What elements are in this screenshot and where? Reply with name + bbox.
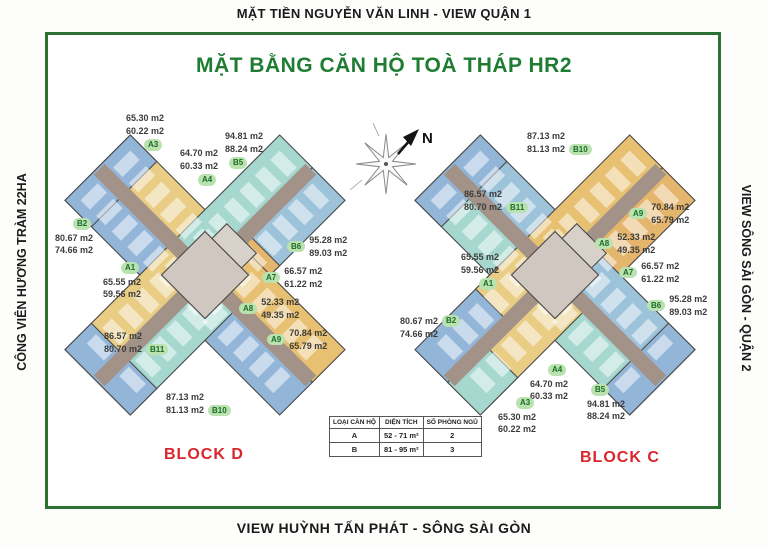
unit-badge: A8 [239,303,257,315]
unit-label-d-b5: 94.81 m288.24 m2 B5 [225,130,263,169]
legend-header-row: LOẠI CĂN HỘ DIỆN TÍCH SỐ PHÒNG NGỦ [330,417,482,429]
legend-cell-area: 81 - 95 m² [379,443,423,457]
unit-area-net: 80.70 m2 [104,343,142,356]
legend-header-type: LOẠI CĂN HỘ [330,417,380,429]
unit-badge: A1 [121,262,139,274]
unit-badge: B11 [146,344,168,356]
unit-area-gross: 66.57 m2 [641,260,679,273]
unit-area-gross: 64.70 m2 [180,147,218,160]
page-title: MẶT BẰNG CĂN HỘ TOÀ THÁP HR2 [0,54,768,78]
unit-area-gross: 52.33 m2 [261,296,299,309]
right-view-label: VIEW SÔNG SÀI GÒN - QUẬN 2 [739,185,753,372]
unit-area-net: 49.35 m2 [261,309,299,322]
unit-area-gross: 64.70 m2 [530,378,568,391]
bottom-view-label: VIEW HUỲNH TẤN PHÁT - SÔNG SÀI GÒN [0,520,768,536]
unit-label-d-a3: 65.30 m260.22 m2 A3 [126,112,164,151]
unit-label-c-a8: A8 52.33 m249.35 m2 [595,231,655,256]
block-d-name: BLOCK D [164,446,244,464]
unit-label-c-a1: 65.55 m259.56 m2 A1 [461,251,499,290]
unit-area-gross: 87.13 m2 [527,130,565,143]
unit-area-net: 89.03 m2 [669,306,707,319]
legend-row-a: A 52 - 71 m² 2 [330,429,482,443]
unit-badge: A4 [548,364,566,376]
unit-badge: A9 [267,334,285,346]
legend-cell-bedrooms: 3 [423,443,481,457]
unit-area-gross: 86.57 m2 [104,330,142,343]
unit-label-d-b10: 87.13 m281.13 m2 B10 [166,391,231,416]
legend-cell-type: A [330,429,380,443]
unit-area-net: 74.66 m2 [400,328,438,341]
top-street-label: MẶT TIỀN NGUYỄN VĂN LINH - VIEW QUẬN 1 [0,6,768,21]
unit-area-net: 88.24 m2 [225,143,263,156]
unit-label-c-b10: 87.13 m281.13 m2 B10 [527,130,592,155]
unit-area-gross: 94.81 m2 [587,398,625,411]
unit-badge: A4 [198,174,216,186]
unit-area-net: 81.13 m2 [527,143,565,156]
unit-badge: B2 [442,315,460,327]
left-view-label: CÔNG VIÊN HƯƠNG TRÀM 22HA [15,173,29,370]
unit-area-net: 61.22 m2 [641,273,679,286]
legend-header-bedrooms: SỐ PHÒNG NGỦ [423,417,481,429]
unit-badge: A3 [144,139,162,151]
unit-label-d-a9: A9 70.84 m265.79 m2 [267,327,327,352]
unit-area-gross: 80.67 m2 [400,315,438,328]
unit-area-gross: 66.57 m2 [284,265,322,278]
unit-area-gross: 70.84 m2 [289,327,327,340]
unit-area-net: 60.22 m2 [498,423,536,436]
unit-area-gross: 52.33 m2 [617,231,655,244]
unit-area-gross: 95.28 m2 [669,293,707,306]
unit-badge: B5 [591,384,609,396]
unit-area-net: 81.13 m2 [166,404,204,417]
unit-type-legend-table: LOẠI CĂN HỘ DIỆN TÍCH SỐ PHÒNG NGỦ A 52 … [329,416,482,457]
unit-label-c-b2: 80.67 m274.66 m2 B2 [400,315,460,340]
compass-icon: N [346,118,441,203]
unit-area-gross: 87.13 m2 [166,391,204,404]
floorplan-page: MẶT TIỀN NGUYỄN VĂN LINH - VIEW QUẬN 1 C… [0,0,768,549]
unit-area-net: 60.33 m2 [180,160,218,173]
unit-area-gross: 95.28 m2 [309,234,347,247]
unit-label-c-a9: A9 70.84 m265.79 m2 [629,201,689,226]
unit-area-net: 61.22 m2 [284,278,322,291]
unit-area-gross: 65.30 m2 [126,112,164,125]
unit-badge: B2 [73,218,91,230]
unit-badge: A9 [629,208,647,220]
unit-area-gross: 94.81 m2 [225,130,263,143]
unit-area-gross: 86.57 m2 [464,188,502,201]
unit-label-d-b11: 86.57 m280.70 m2 B11 [104,330,168,355]
unit-label-d-b2: B2 80.67 m274.66 m2 [55,218,93,257]
unit-badge: A3 [516,397,534,409]
unit-area-net: 89.03 m2 [309,247,347,260]
unit-label-d-b6: B6 95.28 m289.03 m2 [287,234,347,259]
unit-label-c-b11: 86.57 m280.70 m2 B11 [464,188,528,213]
unit-area-net: 49.35 m2 [617,244,655,257]
unit-badge: B6 [287,241,305,253]
unit-area-net: 88.24 m2 [587,410,625,423]
unit-badge: B11 [506,202,528,214]
unit-area-gross: 80.67 m2 [55,232,93,245]
unit-area-gross: 65.30 m2 [498,411,536,424]
unit-area-gross: 65.55 m2 [103,276,141,289]
unit-label-d-a8: A8 52.33 m249.35 m2 [239,296,299,321]
legend-cell-area: 52 - 71 m² [379,429,423,443]
unit-label-d-a7: A7 66.57 m261.22 m2 [262,265,322,290]
unit-badge: A7 [619,267,637,279]
unit-area-net: 59.56 m2 [461,264,499,277]
unit-label-d-a1: A1 65.55 m259.56 m2 [103,262,141,301]
unit-area-net: 74.66 m2 [55,244,93,257]
unit-label-d-a4: 64.70 m260.33 m2 A4 [180,147,218,186]
unit-area-net: 60.22 m2 [126,125,164,138]
unit-badge: A1 [479,278,497,290]
unit-area-net: 59.56 m2 [103,288,141,301]
unit-label-c-b5: B5 94.81 m288.24 m2 [587,384,625,423]
unit-badge: B10 [208,405,231,417]
north-label: N [422,130,433,147]
legend-cell-type: B [330,443,380,457]
unit-area-net: 65.79 m2 [651,214,689,227]
unit-badge: A7 [262,272,280,284]
unit-label-c-a3: A3 65.30 m260.22 m2 [498,397,536,436]
block-c-name: BLOCK C [580,449,660,467]
unit-badge: B6 [647,300,665,312]
unit-area-net: 80.70 m2 [464,201,502,214]
unit-label-c-b6: B6 95.28 m289.03 m2 [647,293,707,318]
legend-header-area: DIỆN TÍCH [379,417,423,429]
unit-label-c-a7: A7 66.57 m261.22 m2 [619,260,679,285]
unit-area-gross: 65.55 m2 [461,251,499,264]
unit-area-gross: 70.84 m2 [651,201,689,214]
legend-row-b: B 81 - 95 m² 3 [330,443,482,457]
legend-cell-bedrooms: 2 [423,429,481,443]
unit-area-net: 65.79 m2 [289,340,327,353]
unit-badge: B10 [569,144,592,156]
unit-badge: B5 [229,157,247,169]
unit-badge: A8 [595,238,613,250]
